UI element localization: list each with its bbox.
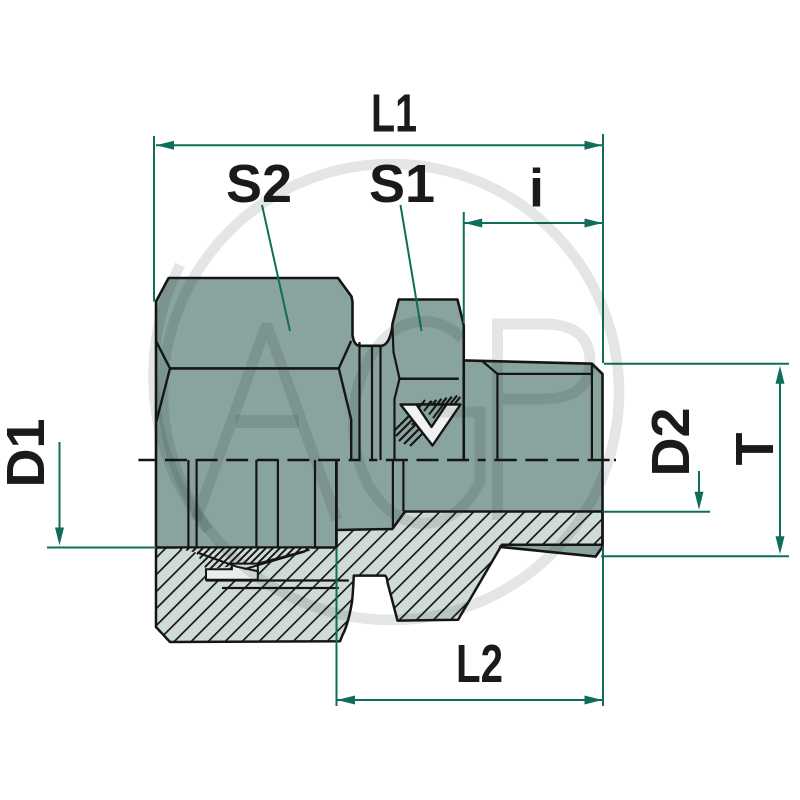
svg-text:D1: D1: [0, 418, 56, 487]
svg-text:D2: D2: [641, 407, 701, 476]
svg-text:L2: L2: [456, 634, 503, 694]
svg-text:L1: L1: [371, 84, 417, 144]
svg-text:T: T: [725, 433, 785, 466]
